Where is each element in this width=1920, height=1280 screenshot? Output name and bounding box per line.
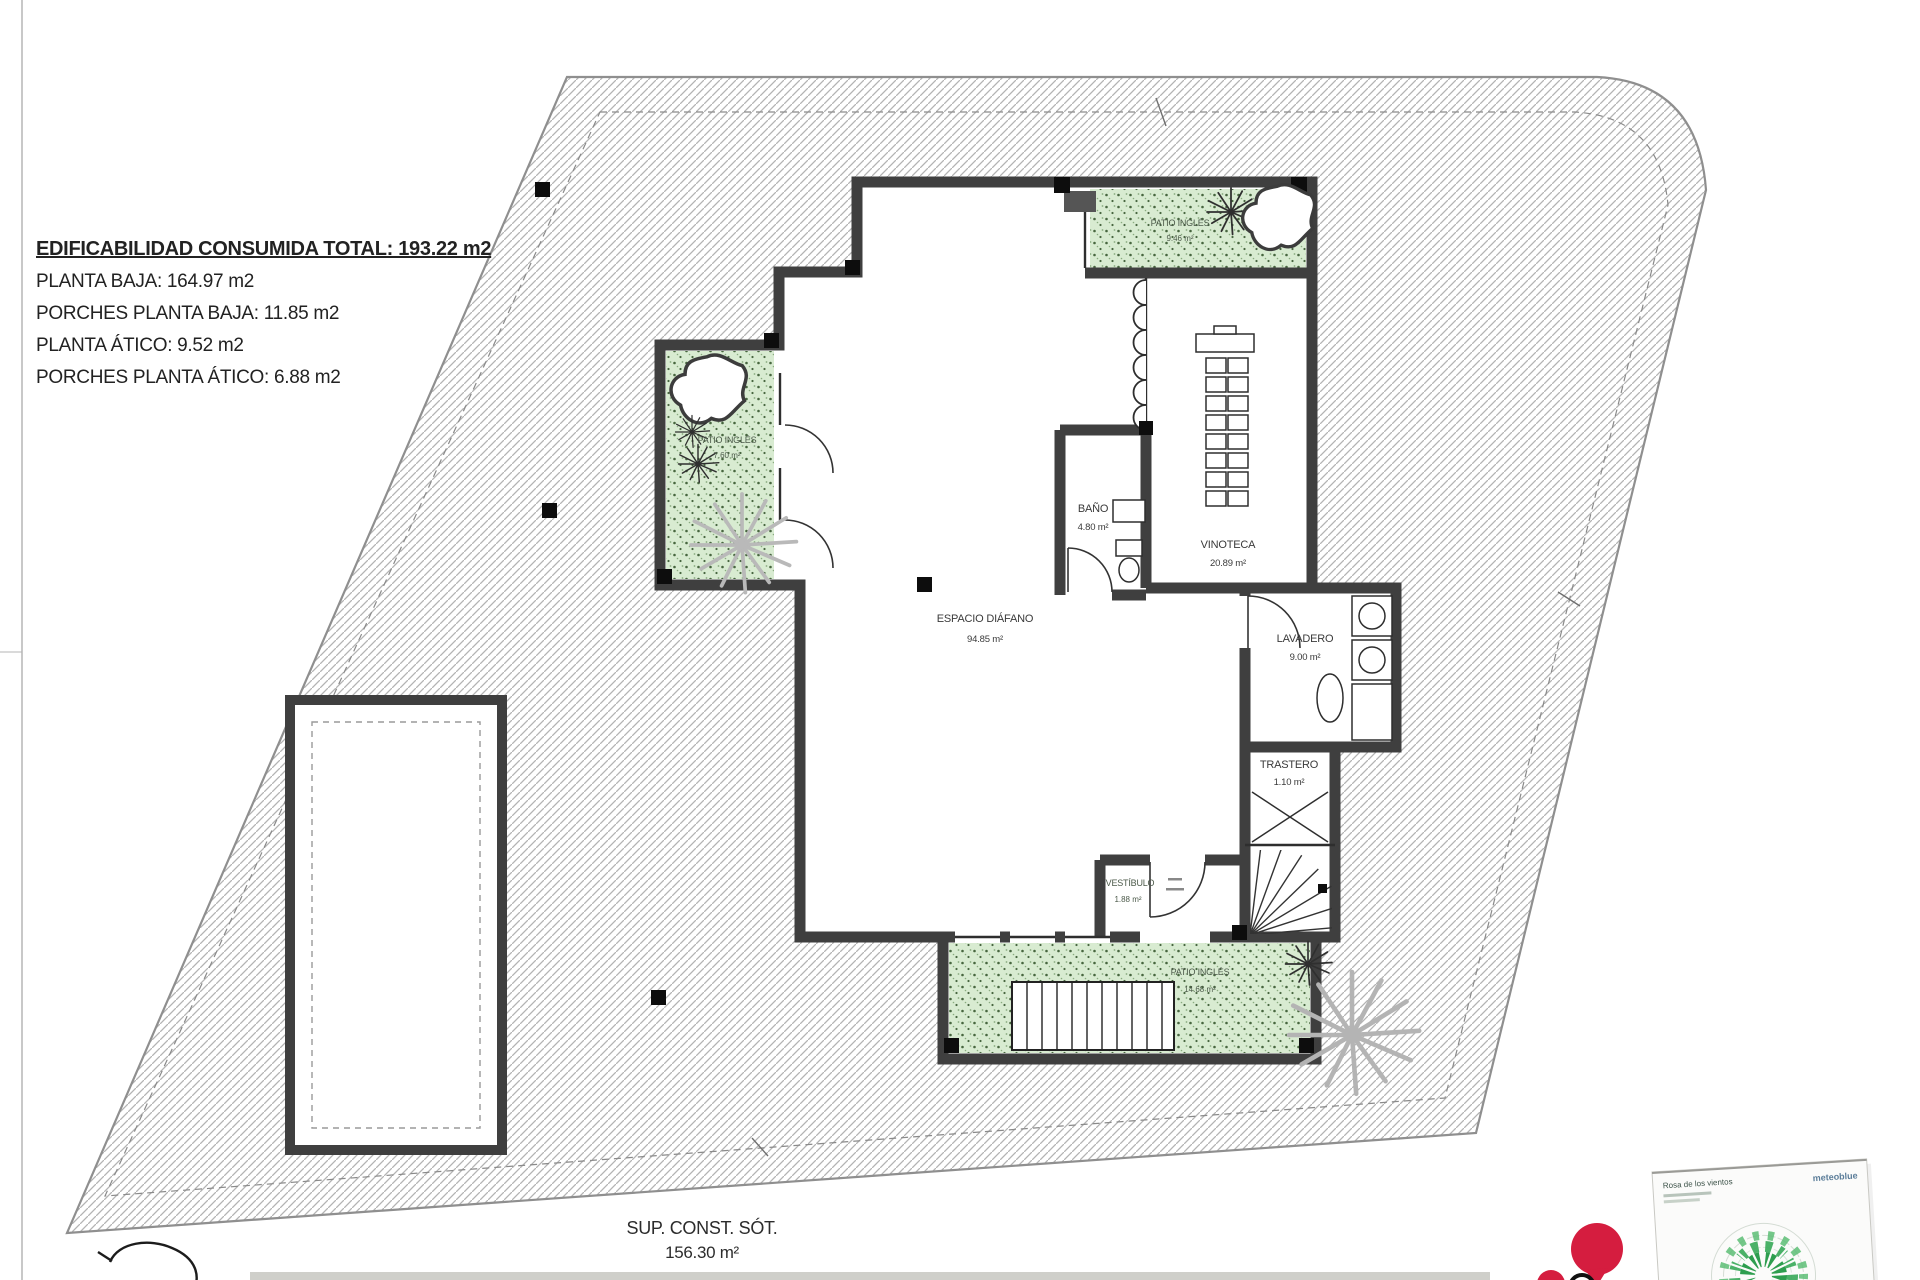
room-area-vestibulo: 1.88 m² — [1114, 895, 1141, 904]
room-label-vinoteca: VINOTECA — [1201, 539, 1256, 551]
ground-bar — [250, 1272, 1490, 1280]
patio-left-label: PATIO INGLÉS — [698, 435, 757, 445]
stair-pivot — [1318, 884, 1327, 893]
stair-note-smudge — [1166, 888, 1184, 891]
room-label-lavadero: LAVADERO — [1277, 633, 1334, 645]
footer-label: SUP. CONST. SÓT. — [592, 1218, 812, 1239]
summary-line-porches-baja: PORCHES PLANTA BAJA: 11.85 m2 — [36, 303, 491, 325]
buildability-summary: EDIFICABILIDAD CONSUMIDA TOTAL: 193.22 m… — [36, 238, 491, 399]
footer-area: 156.30 m² — [592, 1243, 812, 1263]
room-area-lavadero: 9.00 m² — [1290, 652, 1321, 663]
patio-bottom-area: 14.68 m² — [1184, 985, 1216, 994]
wall-stub — [1064, 191, 1096, 212]
map-pin — [1537, 1223, 1623, 1280]
pool — [290, 700, 502, 1150]
summary-line-porches-atico: PORCHES PLANTA ÁTICO: 6.88 m2 — [36, 367, 491, 389]
room-label-espacio-diafano: ESPACIO DIÁFANO — [937, 612, 1034, 625]
patio-bottom-label: PATIO INGLÉS — [1171, 967, 1230, 977]
room-area-espacio-diafano: 94.85 m² — [967, 634, 1003, 645]
summary-line-planta-baja: PLANTA BAJA: 164.97 m2 — [36, 271, 491, 293]
compass-sketch — [98, 1243, 197, 1280]
windrose-card: Rosa de los vientos meteoblue — [1652, 1159, 1881, 1280]
room-area-vinoteca: 20.89 m² — [1210, 558, 1246, 569]
summary-line-planta-atico: PLANTA ÁTICO: 9.52 m2 — [36, 335, 491, 357]
page-border — [0, 0, 22, 1280]
stair-note-smudge — [1168, 878, 1182, 881]
patio-stair — [1012, 982, 1174, 1050]
basement-surface-note: SUP. CONST. SÓT. 156.30 m² — [592, 1218, 812, 1263]
room-label-trastero: TRASTERO — [1260, 759, 1319, 771]
patio-top-label: PATIO INGLÉS — [1151, 218, 1210, 228]
room-label-bano: BAÑO — [1078, 502, 1109, 515]
room-label-vestibulo: VESTÍBULO — [1106, 878, 1155, 888]
patio-top-area: 9.46 m² — [1166, 234, 1193, 243]
patio-left-area: 7.60 m² — [713, 451, 740, 460]
floor-plan-page: ESPACIO DIÁFANO 94.85 m² BAÑO 4.80 m² VI… — [0, 0, 1920, 1280]
summary-title: EDIFICABILIDAD CONSUMIDA TOTAL: 193.22 m… — [36, 238, 491, 261]
room-area-trastero: 1.10 m² — [1274, 777, 1305, 788]
room-area-bano: 4.80 m² — [1078, 522, 1109, 533]
site-plan-drawing: ESPACIO DIÁFANO 94.85 m² BAÑO 4.80 m² VI… — [0, 0, 1920, 1280]
